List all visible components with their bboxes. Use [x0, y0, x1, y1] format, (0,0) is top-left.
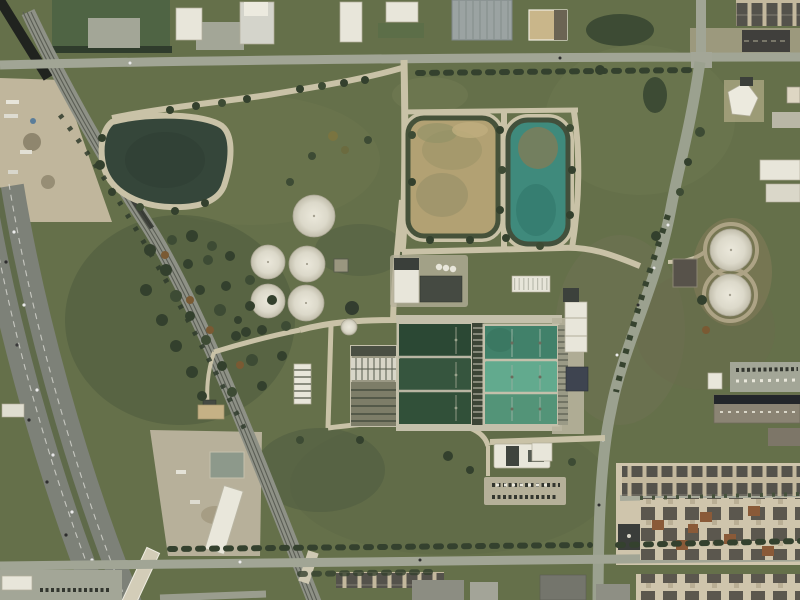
blue-equipment [30, 118, 36, 124]
satellite-image [0, 0, 800, 600]
basin-block-east [484, 325, 558, 425]
townhome-row [622, 466, 800, 496]
east-edge-building-1 [760, 160, 800, 180]
townhomes-northeast [736, 0, 800, 26]
basin-gallery [472, 323, 484, 425]
admin-parking-lot [484, 477, 566, 505]
commercial-parking [730, 362, 800, 392]
warehouse [452, 0, 512, 40]
small-dome-tank [341, 319, 357, 335]
dark-clarifier [345, 301, 359, 315]
gravel-yard [150, 430, 262, 556]
trailer-row [512, 276, 550, 292]
aerial-photo-canvas [0, 0, 800, 600]
aeration-channels [351, 346, 396, 426]
basin-block-west [398, 323, 472, 425]
pump-building [566, 367, 588, 391]
process-building-dark [420, 276, 462, 302]
filter-building [565, 302, 587, 352]
east-outbuilding [673, 259, 697, 287]
green-roof-terrace [378, 23, 424, 38]
green-roof-building [210, 452, 244, 478]
substation [334, 259, 348, 272]
